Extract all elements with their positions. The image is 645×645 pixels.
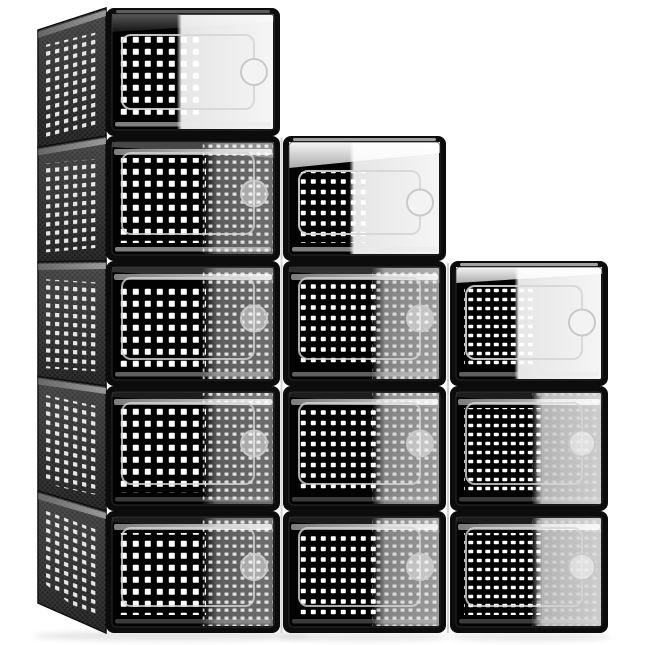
lid-top-edge-highlight [116, 10, 270, 13]
bottom-lip-highlight [115, 497, 271, 502]
back-vent-holes [120, 408, 206, 493]
lid-top-edge-highlight [293, 138, 436, 141]
side-panel-segment [38, 8, 106, 147]
finger-hole [407, 554, 433, 580]
storage-box-left-1 [106, 8, 280, 136]
side-vent-holes [46, 159, 98, 253]
storage-box-left-4 [106, 386, 280, 511]
bottom-lip-highlight [292, 497, 437, 502]
finger-hole [241, 59, 267, 85]
product-photo-stage [0, 0, 645, 645]
floor-shadow [449, 633, 611, 641]
side-lid-edge [38, 263, 106, 270]
bottom-lip-highlight [115, 122, 271, 127]
bottom-lip-highlight [459, 497, 599, 502]
bottom-lip-highlight [459, 619, 599, 624]
finger-hole [241, 181, 267, 207]
back-vent-holes [120, 283, 206, 368]
side-panel-segment [38, 136, 106, 262]
column-gap-line [447, 263, 449, 633]
back-vent-holes [120, 158, 206, 243]
bottom-lip-highlight [292, 619, 437, 624]
side-vent-holes [46, 279, 98, 371]
back-vent-holes [297, 283, 377, 368]
back-vent-holes [297, 408, 377, 493]
finger-hole [569, 431, 595, 457]
finger-hole [241, 306, 267, 332]
bottom-lip-highlight [459, 372, 599, 377]
storage-box-right-3 [450, 511, 608, 633]
storage-box-right-1 [450, 261, 608, 386]
bottom-lip-highlight [115, 247, 271, 252]
storage-box-middle-4 [283, 511, 446, 633]
bottom-lip-highlight [115, 619, 271, 624]
finger-hole [407, 431, 433, 457]
lid-top-edge-highlight [460, 263, 598, 266]
floor-shadow [278, 633, 450, 641]
side-panel-segment [38, 491, 106, 633]
shoe-box-stack-photo [0, 0, 645, 645]
finger-hole [569, 554, 595, 580]
side-vent-holes [46, 32, 98, 137]
back-vent-holes [297, 533, 377, 615]
finger-hole [241, 554, 267, 580]
finger-hole [407, 306, 433, 332]
storage-box-middle-1 [283, 136, 446, 261]
bottom-lip-highlight [292, 372, 437, 377]
back-vent-holes [464, 533, 541, 615]
side-panel-segment [38, 261, 106, 386]
back-vent-holes [464, 408, 541, 493]
finger-hole [569, 310, 595, 336]
storage-box-left-2 [106, 136, 280, 261]
storage-box-middle-2 [283, 261, 446, 386]
side-vent-holes [46, 395, 98, 495]
storage-box-left-5 [106, 511, 280, 633]
bottom-lip-highlight [115, 372, 271, 377]
back-vent-holes [120, 533, 206, 615]
column-gap-line [281, 138, 283, 633]
storage-box-middle-3 [283, 386, 446, 511]
storage-box-left-3 [106, 261, 280, 386]
finger-hole [407, 190, 433, 216]
bottom-lip-highlight [292, 247, 437, 252]
storage-box-right-2 [450, 386, 608, 511]
finger-hole [241, 431, 267, 457]
side-panel-segment [38, 377, 106, 511]
